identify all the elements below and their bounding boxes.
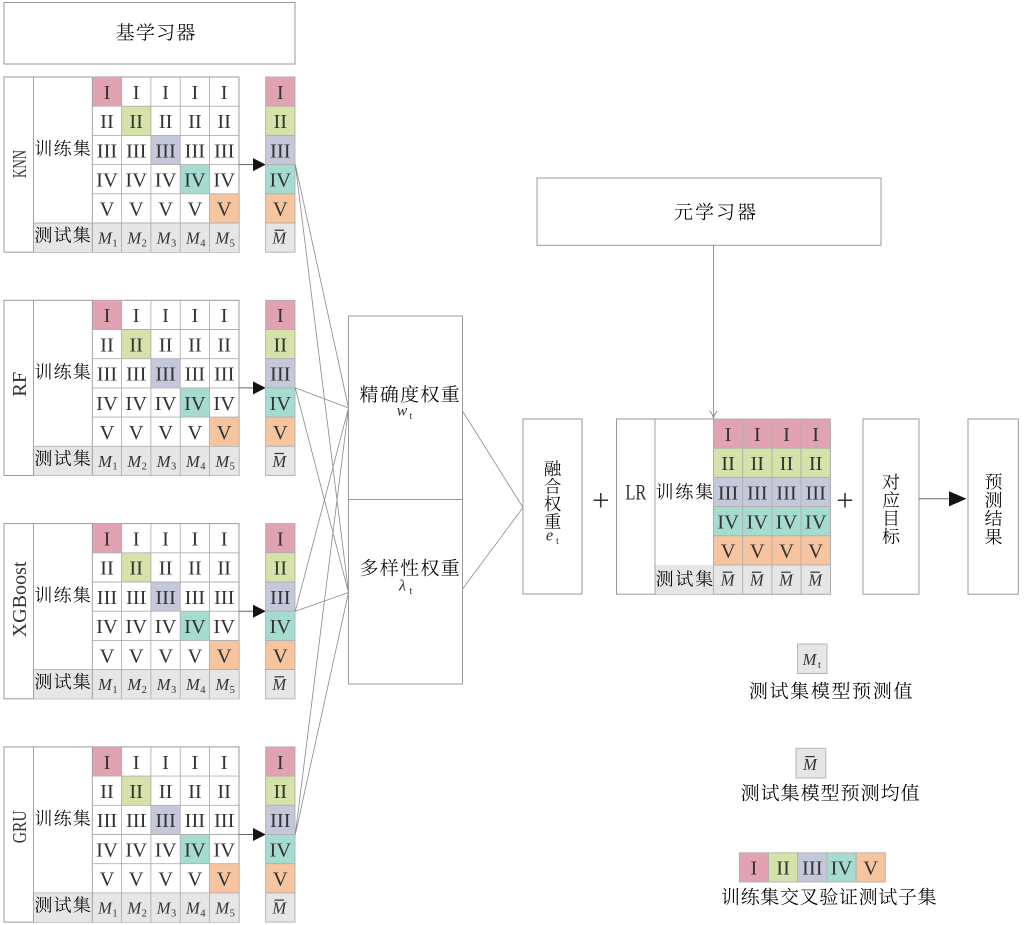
svg-text:M: M <box>126 675 142 694</box>
svg-text:III: III <box>97 140 118 162</box>
svg-text:t: t <box>410 411 413 422</box>
svg-text:IV: IV <box>96 170 118 192</box>
svg-text:IV: IV <box>184 616 206 638</box>
svg-text:IV: IV <box>717 512 739 534</box>
svg-text:III: III <box>214 364 235 386</box>
svg-text:IV: IV <box>213 393 235 415</box>
svg-text:II: II <box>721 453 735 475</box>
svg-text:M: M <box>185 229 201 248</box>
svg-text:2: 2 <box>142 685 147 696</box>
svg-text:II: II <box>100 558 114 580</box>
svg-text:M: M <box>802 650 818 669</box>
svg-text:1: 1 <box>112 908 117 919</box>
svg-text:II: II <box>100 334 114 356</box>
svg-text:II: II <box>217 111 231 133</box>
svg-text:3: 3 <box>171 238 176 249</box>
svg-text:II: II <box>129 781 143 803</box>
svg-text:V: V <box>808 541 823 563</box>
svg-text:V: V <box>187 869 202 891</box>
svg-text:II: II <box>750 453 764 475</box>
svg-text:V: V <box>187 199 202 221</box>
svg-text:III: III <box>126 810 147 832</box>
svg-text:V: V <box>129 199 144 221</box>
svg-text:I: I <box>133 752 140 774</box>
svg-text:I: I <box>221 752 228 774</box>
svg-text:V: V <box>217 422 232 444</box>
svg-text:V: V <box>158 645 173 667</box>
svg-text:V: V <box>750 541 765 563</box>
svg-text:M: M <box>156 229 172 248</box>
svg-text:III: III <box>97 587 118 609</box>
svg-text:M: M <box>126 452 142 471</box>
svg-text:II: II <box>188 111 202 133</box>
svg-text:IV: IV <box>776 512 798 534</box>
svg-text:M: M <box>97 675 113 694</box>
svg-text:V: V <box>273 199 288 221</box>
svg-text:III: III <box>270 810 291 832</box>
svg-text:w: w <box>397 403 408 420</box>
svg-text:V: V <box>779 541 794 563</box>
svg-text:V: V <box>273 869 288 891</box>
svg-text:I: I <box>725 424 732 446</box>
svg-text:I: I <box>812 424 819 446</box>
svg-text:IV: IV <box>269 616 291 638</box>
svg-text:I: I <box>191 305 198 327</box>
svg-text:II: II <box>159 781 173 803</box>
svg-text:IV: IV <box>184 393 206 415</box>
svg-text:IV: IV <box>155 393 177 415</box>
svg-text:3: 3 <box>171 908 176 919</box>
svg-text:IV: IV <box>155 839 177 861</box>
svg-text:II: II <box>159 558 173 580</box>
svg-text:III: III <box>155 810 176 832</box>
svg-text:III: III <box>747 482 768 504</box>
svg-text:I: I <box>191 529 198 551</box>
svg-text:I: I <box>191 752 198 774</box>
svg-text:III: III <box>270 587 291 609</box>
svg-text:II: II <box>217 781 231 803</box>
svg-text:IV: IV <box>269 393 291 415</box>
svg-text:λ: λ <box>398 578 406 595</box>
svg-text:I: I <box>221 529 228 551</box>
svg-text:M: M <box>720 571 736 590</box>
svg-text:I: I <box>133 82 140 104</box>
svg-text:III: III <box>185 140 206 162</box>
svg-text:4: 4 <box>200 462 206 473</box>
svg-text:III: III <box>126 587 147 609</box>
svg-text:M: M <box>214 899 230 918</box>
svg-text:I: I <box>277 752 284 774</box>
svg-text:t: t <box>556 536 559 547</box>
svg-text:5: 5 <box>230 908 235 919</box>
svg-text:III: III <box>214 810 235 832</box>
svg-text:III: III <box>185 587 206 609</box>
svg-text:IV: IV <box>746 512 768 534</box>
svg-text:IV: IV <box>269 170 291 192</box>
svg-text:V: V <box>100 645 115 667</box>
svg-text:I: I <box>104 529 111 551</box>
svg-text:M: M <box>97 899 113 918</box>
svg-text:LR: LR <box>625 479 646 504</box>
svg-text:III: III <box>185 810 206 832</box>
svg-text:III: III <box>155 364 176 386</box>
svg-text:V: V <box>158 199 173 221</box>
svg-text:V: V <box>100 422 115 444</box>
svg-text:I: I <box>277 305 284 327</box>
svg-text:RF: RF <box>9 372 31 397</box>
svg-text:III: III <box>97 364 118 386</box>
svg-text:I: I <box>162 305 169 327</box>
svg-text:I: I <box>277 529 284 551</box>
svg-text:M: M <box>271 452 287 471</box>
svg-text:t: t <box>410 586 413 597</box>
svg-text:5: 5 <box>230 462 235 473</box>
svg-text:III: III <box>214 140 235 162</box>
svg-text:IV: IV <box>125 839 147 861</box>
svg-text:III: III <box>802 858 823 880</box>
svg-text:IV: IV <box>184 170 206 192</box>
svg-text:IV: IV <box>213 170 235 192</box>
svg-text:M: M <box>97 452 113 471</box>
svg-text:4: 4 <box>200 238 206 249</box>
svg-text:+: + <box>836 483 853 518</box>
svg-text:M: M <box>749 571 765 590</box>
svg-text:I: I <box>191 82 198 104</box>
svg-text:V: V <box>100 199 115 221</box>
svg-text:V: V <box>217 869 232 891</box>
svg-text:M: M <box>185 452 201 471</box>
svg-text:V: V <box>100 869 115 891</box>
svg-text:5: 5 <box>230 685 235 696</box>
svg-text:I: I <box>221 82 228 104</box>
svg-text:IV: IV <box>125 170 147 192</box>
svg-text:III: III <box>97 810 118 832</box>
svg-text:IV: IV <box>269 839 291 861</box>
svg-text:I: I <box>750 858 757 880</box>
svg-text:I: I <box>104 82 111 104</box>
svg-text:III: III <box>155 587 176 609</box>
svg-text:M: M <box>185 675 201 694</box>
svg-text:M: M <box>271 229 287 248</box>
svg-text:V: V <box>273 422 288 444</box>
svg-text:2: 2 <box>142 238 147 249</box>
svg-text:V: V <box>217 645 232 667</box>
svg-text:t: t <box>818 660 821 671</box>
svg-text:IV: IV <box>155 616 177 638</box>
svg-text:III: III <box>155 140 176 162</box>
svg-text:1: 1 <box>112 685 117 696</box>
svg-text:IV: IV <box>831 858 853 880</box>
svg-text:I: I <box>221 305 228 327</box>
svg-text:M: M <box>126 899 142 918</box>
svg-text:4: 4 <box>200 908 206 919</box>
svg-text:II: II <box>809 453 823 475</box>
svg-text:IV: IV <box>184 839 206 861</box>
svg-text:II: II <box>159 111 173 133</box>
svg-text:II: II <box>780 453 794 475</box>
svg-text:III: III <box>270 140 291 162</box>
svg-text:4: 4 <box>200 685 206 696</box>
svg-text:II: II <box>159 334 173 356</box>
svg-text:V: V <box>129 422 144 444</box>
svg-text:3: 3 <box>171 462 176 473</box>
svg-text:IV: IV <box>213 616 235 638</box>
svg-text:II: II <box>100 111 114 133</box>
svg-text:2: 2 <box>142 908 147 919</box>
svg-text:KNN: KNN <box>9 150 31 178</box>
svg-text:IV: IV <box>96 616 118 638</box>
svg-text:V: V <box>129 869 144 891</box>
svg-text:II: II <box>129 111 143 133</box>
svg-text:II: II <box>273 334 287 356</box>
svg-text:IV: IV <box>125 616 147 638</box>
svg-text:III: III <box>126 364 147 386</box>
svg-text:1: 1 <box>112 462 117 473</box>
svg-text:I: I <box>162 82 169 104</box>
svg-text:I: I <box>104 305 111 327</box>
svg-text:XGBoost: XGBoost <box>9 561 31 637</box>
svg-text:II: II <box>273 111 287 133</box>
svg-text:II: II <box>188 334 202 356</box>
svg-text:I: I <box>162 752 169 774</box>
svg-text:II: II <box>129 334 143 356</box>
svg-text:III: III <box>185 364 206 386</box>
svg-text:III: III <box>805 482 826 504</box>
svg-text:V: V <box>721 541 736 563</box>
svg-text:V: V <box>158 869 173 891</box>
svg-text:III: III <box>214 587 235 609</box>
svg-text:3: 3 <box>171 685 176 696</box>
svg-text:5: 5 <box>230 238 235 249</box>
svg-text:I: I <box>162 529 169 551</box>
svg-text:M: M <box>802 755 818 774</box>
svg-text:II: II <box>129 558 143 580</box>
svg-text:III: III <box>270 364 291 386</box>
svg-text:2: 2 <box>142 462 147 473</box>
svg-text:M: M <box>185 899 201 918</box>
svg-text:V: V <box>129 645 144 667</box>
svg-text:1: 1 <box>112 238 117 249</box>
svg-text:M: M <box>126 229 142 248</box>
svg-text:I: I <box>104 752 111 774</box>
svg-text:V: V <box>187 422 202 444</box>
svg-text:III: III <box>126 140 147 162</box>
svg-text:V: V <box>158 422 173 444</box>
svg-text:III: III <box>776 482 797 504</box>
svg-text:M: M <box>807 571 823 590</box>
svg-text:III: III <box>718 482 739 504</box>
svg-text:I: I <box>754 424 761 446</box>
svg-text:IV: IV <box>805 512 827 534</box>
svg-text:M: M <box>97 229 113 248</box>
svg-text:V: V <box>187 645 202 667</box>
svg-text:M: M <box>271 675 287 694</box>
svg-text:II: II <box>217 558 231 580</box>
svg-text:I: I <box>133 529 140 551</box>
svg-text:II: II <box>188 781 202 803</box>
svg-text:II: II <box>273 781 287 803</box>
svg-text:IV: IV <box>155 170 177 192</box>
svg-text:I: I <box>277 82 284 104</box>
svg-text:I: I <box>783 424 790 446</box>
svg-text:M: M <box>156 675 172 694</box>
svg-text:I: I <box>133 305 140 327</box>
svg-text:V: V <box>217 199 232 221</box>
svg-text:II: II <box>188 558 202 580</box>
svg-text:GRU: GRU <box>9 810 31 843</box>
svg-text:M: M <box>156 899 172 918</box>
svg-text:M: M <box>214 452 230 471</box>
svg-text:M: M <box>271 899 287 918</box>
svg-text:II: II <box>100 781 114 803</box>
svg-text:IV: IV <box>125 393 147 415</box>
svg-text:M: M <box>156 452 172 471</box>
svg-text:V: V <box>273 645 288 667</box>
svg-text:M: M <box>778 571 794 590</box>
svg-text:+: + <box>592 483 609 518</box>
svg-text:IV: IV <box>96 839 118 861</box>
svg-text:II: II <box>217 334 231 356</box>
svg-text:M: M <box>214 229 230 248</box>
svg-text:II: II <box>273 558 287 580</box>
svg-text:IV: IV <box>96 393 118 415</box>
svg-text:II: II <box>776 858 790 880</box>
svg-text:V: V <box>863 858 878 880</box>
svg-text:e: e <box>546 526 553 545</box>
svg-text:IV: IV <box>213 839 235 861</box>
svg-text:M: M <box>214 675 230 694</box>
